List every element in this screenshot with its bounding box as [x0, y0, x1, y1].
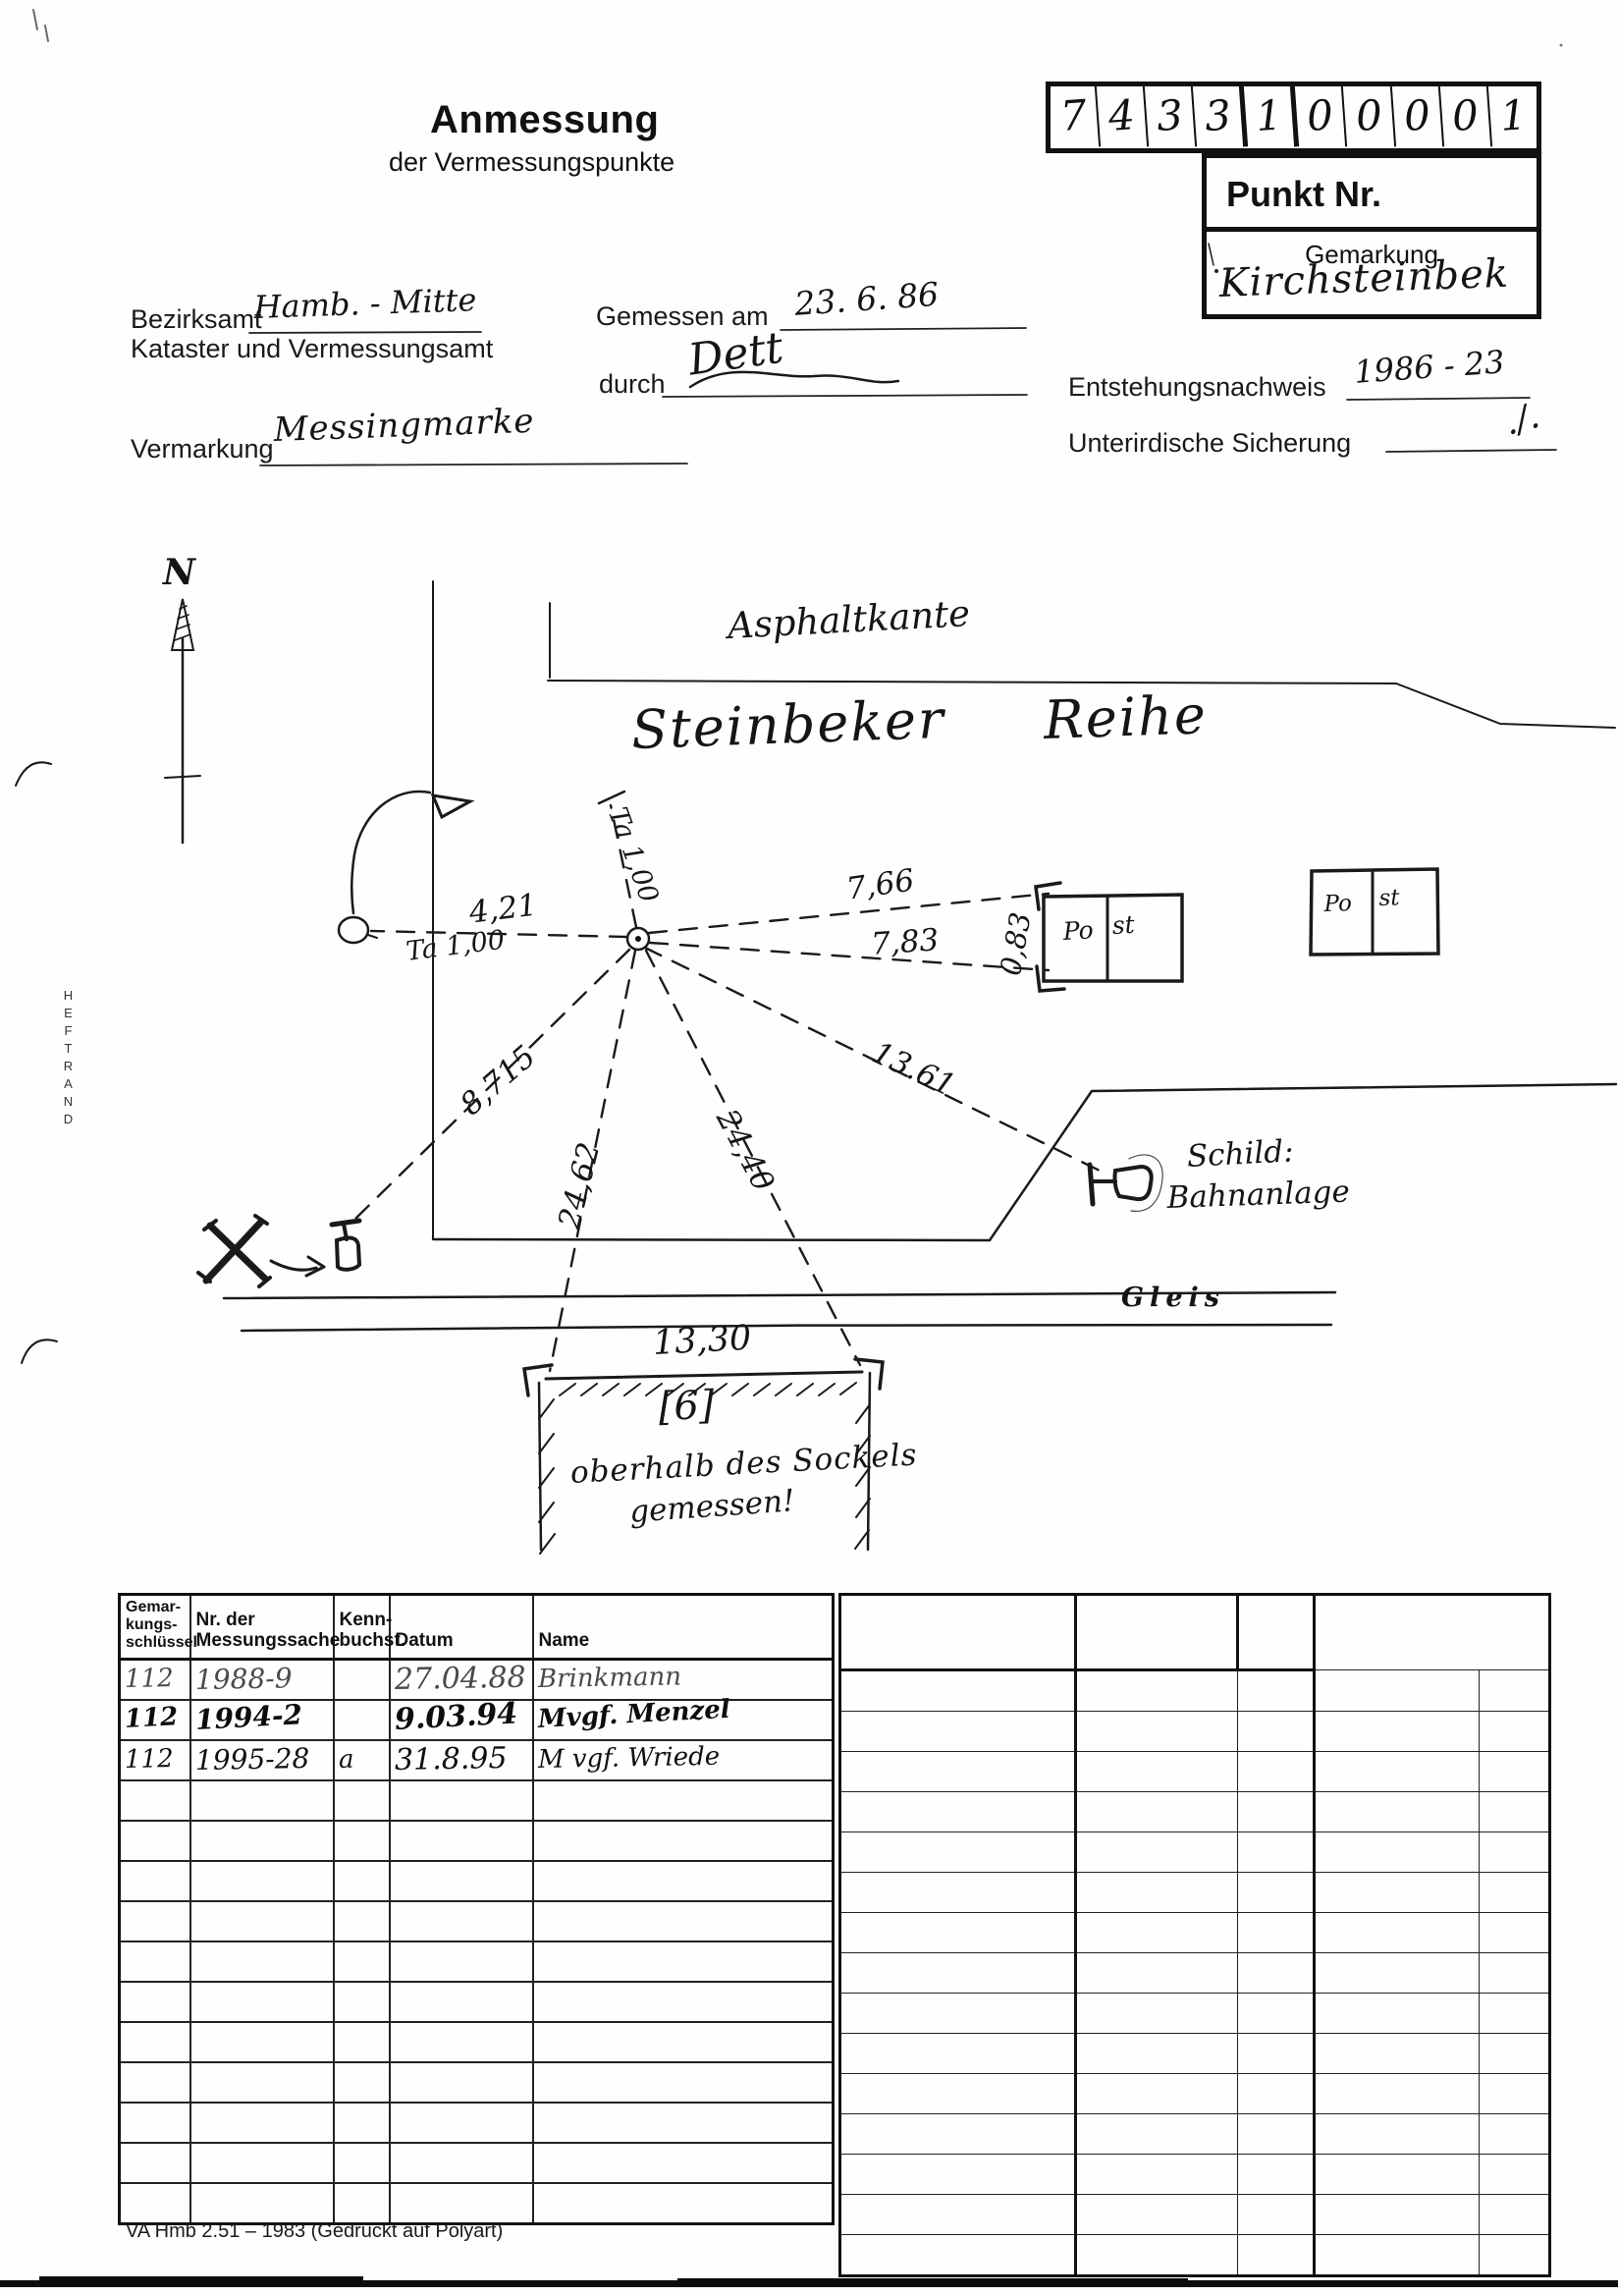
table-cell	[1480, 2114, 1550, 2155]
margin-arc-top	[16, 762, 51, 786]
table-cell	[1076, 2034, 1238, 2074]
table-cell	[1480, 1913, 1550, 1953]
handwritten-entry: 112	[124, 1702, 179, 1734]
log-column-header: Datum	[390, 1595, 533, 1660]
handwritten-entry: 31.8.95	[394, 1741, 507, 1777]
table-cell	[533, 2022, 834, 2062]
table-cell	[390, 1821, 533, 1861]
table-cell	[1076, 2235, 1238, 2276]
table-cell	[1238, 2155, 1315, 2195]
table-cell: 112	[120, 1740, 190, 1780]
table-cell	[190, 1821, 334, 1861]
table-row	[840, 1994, 1550, 2034]
table-row	[840, 1792, 1550, 1832]
table-cell	[1076, 2074, 1238, 2114]
table-cell	[120, 1941, 190, 1982]
table-cell: 1995-28	[190, 1740, 334, 1780]
table-cell	[390, 1861, 533, 1901]
survey-point-icon	[627, 928, 649, 950]
table-cell: 1988-9	[190, 1659, 334, 1700]
table-cell: 112	[120, 1659, 190, 1700]
point-number-digit: 0	[1392, 84, 1444, 149]
table-cell	[1480, 1712, 1550, 1752]
table-cell	[840, 2074, 1076, 2114]
table-cell	[533, 2143, 834, 2183]
page-title: Anmessung	[430, 98, 659, 142]
table-cell	[1076, 2114, 1238, 2155]
lamp-post-icon	[339, 792, 430, 943]
north-label: N	[163, 552, 195, 593]
table-cell	[1315, 2034, 1480, 2074]
handwritten-entry: Brinkmann	[537, 1663, 681, 1695]
lower-building-outline	[433, 1084, 1616, 1240]
table-cell	[533, 1780, 834, 1821]
table-cell	[1238, 1670, 1315, 1712]
table-cell	[840, 2235, 1076, 2276]
table-cell	[1315, 2074, 1480, 2114]
table-cell	[190, 2062, 334, 2103]
north-arrow-icon	[165, 599, 200, 843]
durch-label: durch	[599, 369, 666, 400]
table-cell	[1238, 1953, 1315, 1994]
scan-edge-bar	[0, 2276, 1618, 2287]
handwritten-entry: M vgf. Wriede	[537, 1742, 720, 1775]
post-far-label-left: Po	[1323, 891, 1352, 917]
handwritten-entry: 1994-2	[194, 1698, 303, 1736]
table-cell	[334, 2062, 390, 2103]
table-cell	[190, 1780, 334, 1821]
hydrant-icon	[332, 1221, 359, 1270]
crossed-out-icon	[198, 1216, 270, 1286]
table-cell	[190, 1861, 334, 1901]
table-row	[120, 2143, 834, 2183]
table-cell: 112	[120, 1700, 190, 1740]
table-cell	[840, 1712, 1076, 1752]
continuation-table	[838, 1593, 1551, 2277]
table-cell	[390, 1901, 533, 1941]
table-cell	[120, 2062, 190, 2103]
table-row	[120, 2183, 834, 2224]
table-cell	[190, 2183, 334, 2224]
table-cell	[533, 2103, 834, 2143]
log-column-header: Name	[533, 1595, 834, 1660]
point-number-digit: 0	[1440, 84, 1492, 149]
table-cell: 1994-2	[190, 1700, 334, 1740]
table-cell	[334, 1941, 390, 1982]
margin-arc-bottom	[22, 1339, 57, 1363]
table-cell	[334, 1901, 390, 1941]
point-number-digit: 3	[1193, 84, 1248, 149]
measurement-building-width: 13,30	[652, 1319, 752, 1363]
table-cell	[190, 1941, 334, 1982]
measurement-post-bottom: 7,83	[870, 922, 940, 962]
table-row	[120, 1901, 834, 1941]
sign-label-line2: Bahnanlage	[1166, 1175, 1350, 1216]
table-row	[840, 2074, 1550, 2114]
sign-icon	[1090, 1155, 1162, 1211]
sign-label-line1: Schild:	[1186, 1133, 1294, 1175]
handwritten-entry: Mvgf. Menzel	[537, 1695, 730, 1734]
handwritten-entry: 1995-28	[194, 1742, 309, 1777]
table-cell	[1238, 1792, 1315, 1832]
point-number-digit: 4	[1097, 84, 1149, 149]
point-number-digit: 0	[1295, 84, 1347, 149]
table-cell	[190, 2022, 334, 2062]
post-near-label-left: Po	[1062, 915, 1094, 946]
post-far-label-right: st	[1378, 885, 1400, 911]
table-row	[840, 2114, 1550, 2155]
table-cell	[190, 1982, 334, 2022]
table-row	[120, 1821, 834, 1861]
table-cell	[334, 2143, 390, 2183]
header-row	[840, 1595, 1550, 1670]
empty-column-header	[1076, 1595, 1238, 1670]
bezirksamt-label: Bezirksamt	[131, 304, 262, 335]
table-cell: 9.03.94	[390, 1700, 533, 1740]
table-cell	[1480, 1873, 1550, 1913]
table-cell	[1315, 1873, 1480, 1913]
table-row	[840, 2195, 1550, 2235]
table-cell: a	[334, 1740, 390, 1780]
table-cell	[334, 1861, 390, 1901]
table-cell	[840, 1953, 1076, 1994]
table-cell	[1480, 1670, 1550, 1712]
handwritten-entry: 112	[125, 1664, 174, 1694]
building-ref-label: [6]	[658, 1383, 715, 1430]
point-number-digit: 1	[1244, 84, 1299, 149]
header-row: Gemar- kungs- schlüsselNr. der Messungss…	[120, 1595, 834, 1660]
binding-margin-label: HEFTRAND	[61, 988, 76, 1129]
vermarkung-label: Vermarkung	[131, 434, 274, 465]
empty-column-header	[840, 1595, 1076, 1670]
table-cell	[840, 1873, 1076, 1913]
table-cell	[120, 1901, 190, 1941]
table-cell	[334, 2183, 390, 2224]
table-cell: 31.8.95	[390, 1740, 533, 1780]
log-column-header: Kenn- buchst.	[334, 1595, 390, 1660]
table-row	[120, 2022, 834, 2062]
table-cell	[190, 2143, 334, 2183]
table-cell	[1238, 1994, 1315, 2034]
table-cell	[1315, 2114, 1480, 2155]
table-cell	[533, 1941, 834, 1982]
table-cell	[1315, 1913, 1480, 1953]
punkt-nr-label: Punkt Nr.	[1207, 158, 1537, 215]
table-cell	[334, 2022, 390, 2062]
table-cell	[1480, 1994, 1550, 2034]
table-cell	[840, 2195, 1076, 2235]
table-cell	[1076, 2195, 1238, 2235]
table-cell	[840, 1994, 1076, 2034]
handwritten-entry: 9.03.94	[394, 1696, 518, 1737]
table-cell	[120, 2103, 190, 2143]
table-cell	[1315, 1953, 1480, 1994]
table-cell	[334, 1780, 390, 1821]
table-row	[840, 1873, 1550, 1913]
table-cell	[390, 2062, 533, 2103]
table-row	[120, 1941, 834, 1982]
table-cell	[840, 1832, 1076, 1873]
punkt-nr-box: Punkt Nr.	[1202, 153, 1541, 232]
table-cell	[120, 1861, 190, 1901]
table-cell	[840, 1913, 1076, 1953]
scanned-survey-form: Anmessung der Vermessungspunkte 74331000…	[0, 0, 1618, 2296]
table-cell	[334, 2103, 390, 2143]
table-cell	[1238, 1832, 1315, 1873]
table-row: 1121995-28a31.8.95M vgf. Wriede	[120, 1740, 834, 1780]
table-cell	[1076, 2155, 1238, 2195]
unterirdische-sicherung-label: Unterirdische Sicherung	[1068, 428, 1351, 459]
table-cell	[533, 1821, 834, 1861]
table-cell	[840, 2114, 1076, 2155]
table-row	[840, 2155, 1550, 2195]
table-cell	[1480, 2235, 1550, 2276]
point-number-digit: 7	[1049, 84, 1101, 149]
table-cell	[1238, 2034, 1315, 2074]
table-cell	[390, 2103, 533, 2143]
point-number-digit: 0	[1343, 84, 1395, 149]
table-row	[120, 1861, 834, 1901]
table-cell	[840, 1670, 1076, 1712]
post-near-label-right: st	[1111, 910, 1135, 940]
table-cell	[840, 1752, 1076, 1792]
table-cell	[120, 2022, 190, 2062]
table-cell	[1480, 1792, 1550, 1832]
ta-end-tick	[599, 792, 624, 803]
table-cell	[390, 1941, 533, 1982]
table-cell	[533, 1982, 834, 2022]
table-cell	[390, 1780, 533, 1821]
table-cell	[1238, 1712, 1315, 1752]
table-cell	[1238, 2074, 1315, 2114]
table-cell	[1315, 1832, 1480, 1873]
table-cell	[1076, 1873, 1238, 1913]
table-cell	[390, 2143, 533, 2183]
point-number-digit: 3	[1145, 84, 1197, 149]
table-cell	[1238, 1873, 1315, 1913]
table-cell	[190, 1901, 334, 1941]
table-cell	[1480, 2074, 1550, 2114]
table-cell	[1076, 1994, 1238, 2034]
table-cell	[120, 2183, 190, 2224]
table-cell	[1480, 1953, 1550, 1994]
table-row	[840, 1752, 1550, 1792]
table-cell	[840, 2034, 1076, 2074]
table-cell	[1480, 2195, 1550, 2235]
table-cell	[1238, 2114, 1315, 2155]
table-cell	[120, 1821, 190, 1861]
point-number-digit: 1	[1488, 84, 1538, 149]
table-cell	[1076, 1913, 1238, 1953]
table-cell	[1076, 1712, 1238, 1752]
table-row	[120, 1982, 834, 2022]
table-cell	[120, 2143, 190, 2183]
table-cell	[334, 1982, 390, 2022]
table-cell	[1238, 2195, 1315, 2235]
table-cell	[1238, 2235, 1315, 2276]
table-cell	[1480, 1752, 1550, 1792]
table-cell	[1315, 2195, 1480, 2235]
table-cell	[390, 2183, 533, 2224]
measurement-log-header: Gemar- kungs- schlüsselNr. der Messungss…	[120, 1595, 834, 1660]
table-cell	[1480, 2034, 1550, 2074]
table-row	[840, 1913, 1550, 1953]
table-cell	[120, 1780, 190, 1821]
table-cell	[1480, 2155, 1550, 2195]
page-subtitle: der Vermessungspunkte	[389, 147, 674, 178]
table-cell	[334, 1700, 390, 1740]
table-cell	[1315, 1712, 1480, 1752]
handwritten-entry: 27.04.88	[394, 1660, 525, 1696]
table-cell	[1315, 1792, 1480, 1832]
table-cell: M vgf. Wriede	[533, 1740, 834, 1780]
table-cell: 27.04.88	[390, 1659, 533, 1700]
table-cell	[1238, 1752, 1315, 1792]
track-label: Gleis	[1121, 1283, 1225, 1313]
log-column-header: Gemar- kungs- schlüssel	[120, 1595, 190, 1660]
table-cell	[390, 1982, 533, 2022]
handwritten-entry: a	[338, 1745, 353, 1775]
kataster-label: Kataster und Vermessungsamt	[131, 334, 493, 364]
table-cell: Mvgf. Menzel	[533, 1700, 834, 1740]
post-building-near	[1036, 883, 1182, 991]
table-cell	[533, 1901, 834, 1941]
table-row: 1121988-927.04.88Brinkmann	[120, 1659, 834, 1700]
table-cell	[840, 1792, 1076, 1832]
table-cell	[1238, 1913, 1315, 1953]
table-cell	[1480, 1832, 1550, 1873]
table-cell	[334, 1821, 390, 1861]
table-cell	[1076, 1752, 1238, 1792]
table-cell	[1315, 1994, 1480, 2034]
bezirksamt-value: Hamb. - Mitte	[253, 281, 477, 326]
table-cell	[840, 2155, 1076, 2195]
flag-mark	[433, 795, 470, 817]
table-row	[840, 1832, 1550, 1873]
measurement-log-table: Gemar- kungs- schlüsselNr. der Messungss…	[118, 1593, 835, 2225]
table-row	[840, 1712, 1550, 1752]
street-name-1: Steinbeker	[630, 688, 946, 761]
table-cell	[533, 2183, 834, 2224]
table-row	[120, 1780, 834, 1821]
table-cell	[533, 2062, 834, 2103]
table-cell	[533, 1861, 834, 1901]
gemarkung-box: Gemarkung Kirchsteinbek	[1202, 232, 1541, 319]
arrow-icon	[271, 1257, 324, 1276]
table-row	[840, 1670, 1550, 1712]
entstehungsnachweis-label: Entstehungsnachweis	[1068, 372, 1326, 403]
table-cell	[1076, 1670, 1238, 1712]
table-cell	[190, 2103, 334, 2143]
table-cell	[1315, 1670, 1480, 1712]
table-cell	[1076, 1953, 1238, 1994]
table-cell	[1076, 1832, 1238, 1873]
table-cell	[1315, 2235, 1480, 2276]
table-row	[120, 2062, 834, 2103]
form-id-footer: VA Hmb 2.51 – 1983 (Gedruckt auf Polyart…	[126, 2220, 503, 2243]
handwritten-entry: 112	[125, 1744, 174, 1775]
table-row	[120, 2103, 834, 2143]
table-cell	[1076, 1792, 1238, 1832]
street-name-2: Reihe	[1043, 683, 1209, 751]
table-row	[840, 2034, 1550, 2074]
log-column-header: Nr. der Messungssache	[190, 1595, 334, 1660]
table-cell	[1315, 1752, 1480, 1792]
scan-artifacts	[33, 10, 1563, 47]
table-cell	[1315, 2155, 1480, 2195]
table-cell	[120, 1982, 190, 2022]
table-row	[840, 2235, 1550, 2276]
table-cell: Brinkmann	[533, 1659, 834, 1700]
table-row	[840, 1953, 1550, 1994]
gemarkung-value: Kirchsteinbek	[1218, 251, 1510, 306]
table-cell	[390, 2022, 533, 2062]
empty-column-header	[1238, 1595, 1315, 1670]
point-number-grid: 7433100001	[1046, 82, 1541, 153]
table-row: 1121994-29.03.94Mvgf. Menzel	[120, 1700, 834, 1740]
handwritten-entry: 1988-9	[194, 1662, 292, 1696]
table-cell	[334, 1659, 390, 1700]
